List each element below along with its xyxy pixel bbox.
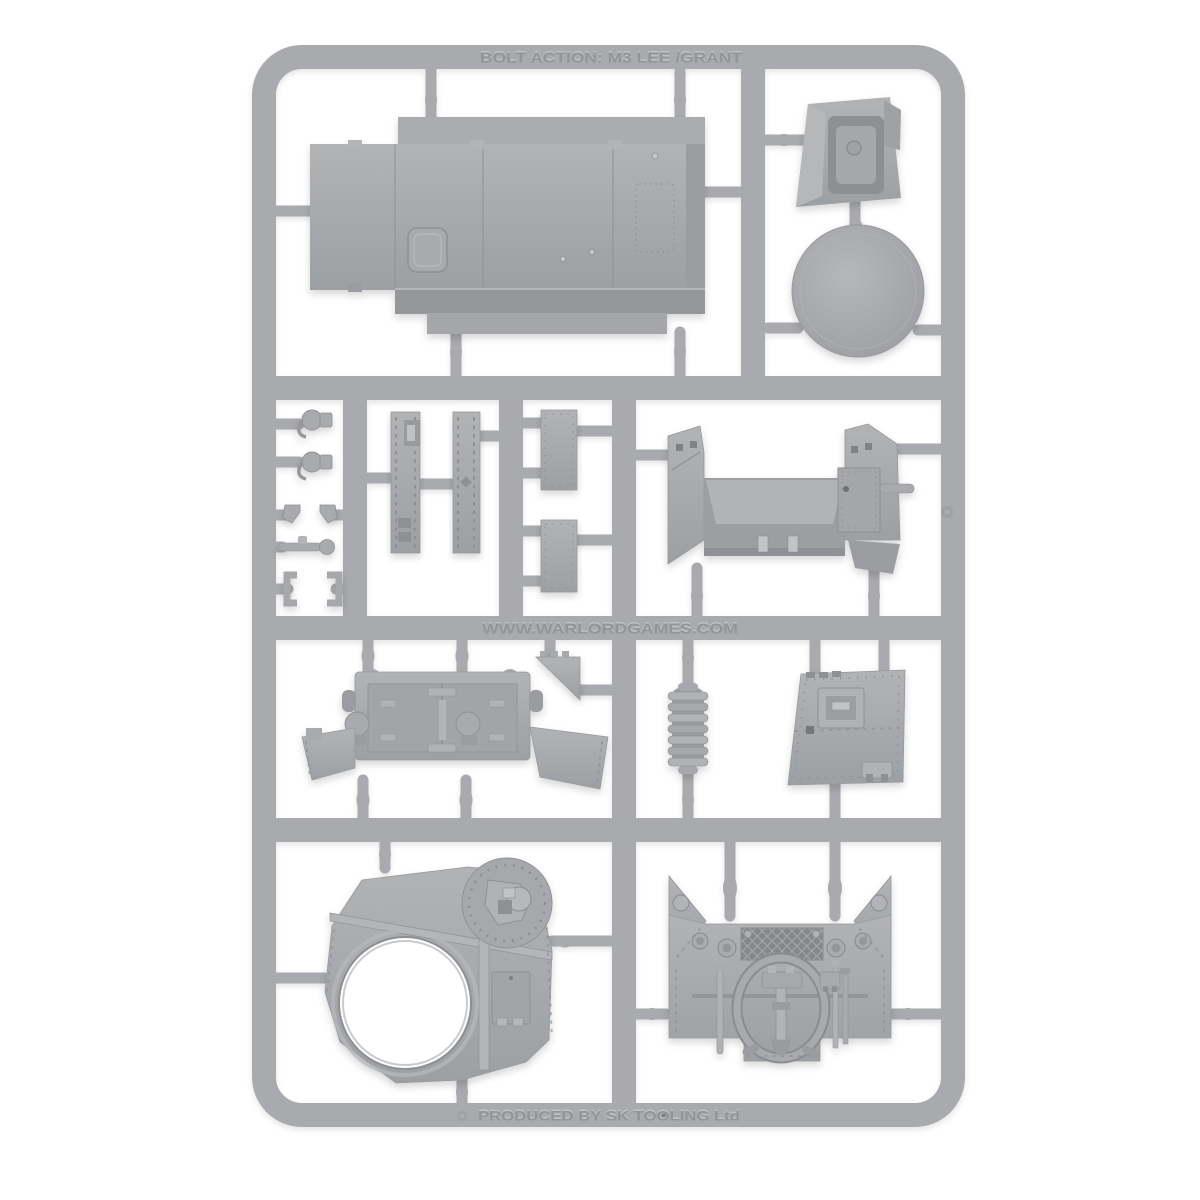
part-stowage-plate-a	[541, 410, 577, 490]
turret-roof-vertical-rib	[479, 938, 489, 1070]
sponson-slope-face	[706, 480, 843, 524]
part-stowage-plate-b	[541, 520, 577, 592]
rear-plate-dome-right	[456, 712, 480, 736]
part-side-skirt-strip-b	[453, 412, 480, 553]
hull-main-deck	[310, 144, 705, 290]
hull-lower-overhang	[395, 288, 705, 314]
sponson-left-plate	[668, 426, 704, 564]
sprue-photo: BOLT ACTION: M3 LEE /GRANT BOLT ACTION: …	[0, 0, 1200, 1200]
part-engine-rear-plate	[669, 876, 891, 1061]
brand-text-top: BOLT ACTION: M3 LEE /GRANT	[480, 49, 742, 66]
part-drivers-hood	[796, 97, 901, 207]
part-air-filter-cylinder	[668, 683, 708, 774]
part-turret-roof	[325, 858, 552, 1083]
part-upper-hull-deck	[310, 117, 705, 334]
turret-roof-panel	[492, 972, 530, 1026]
sprue-svg: BOLT ACTION: M3 LEE /GRANT BOLT ACTION: …	[0, 0, 1200, 1200]
hood-right-flap	[884, 100, 901, 150]
part-side-skirt-strip-a	[391, 412, 420, 553]
hull-lower-strip	[427, 313, 667, 334]
hull-top-step	[398, 117, 705, 146]
part-fender-triangle	[536, 651, 580, 700]
air-filter-ribs	[668, 692, 708, 766]
hood-left-wall	[796, 104, 826, 207]
rear-plate-left-tab	[306, 728, 322, 740]
disc-body	[792, 225, 924, 357]
part-periscope-a	[299, 410, 332, 437]
turret-round-hatch	[462, 858, 552, 948]
sponson-riveted-box	[838, 468, 914, 532]
hood-knob	[847, 141, 861, 155]
part-turret-ring-cover-disc	[792, 221, 924, 357]
part-periscopes-and-fittings	[278, 410, 339, 603]
website-text: WWW.WARLORDGAMES.COM	[482, 620, 738, 637]
turret-ring-opening	[333, 931, 477, 1075]
sponson-right-lower-wing	[848, 540, 900, 574]
producer-text: PRODUCED BY SK TOOLING Ltd	[478, 1108, 740, 1123]
hull-right-bevel	[686, 144, 705, 290]
part-towing-shackle-rod	[278, 536, 335, 555]
part-periscope-b	[299, 452, 332, 479]
part-sponson-front-assembly	[668, 424, 914, 574]
part-side-hatch-plate	[788, 670, 905, 785]
rear-plate-right-wing	[530, 727, 608, 789]
part-lower-rear-plate	[302, 669, 608, 789]
